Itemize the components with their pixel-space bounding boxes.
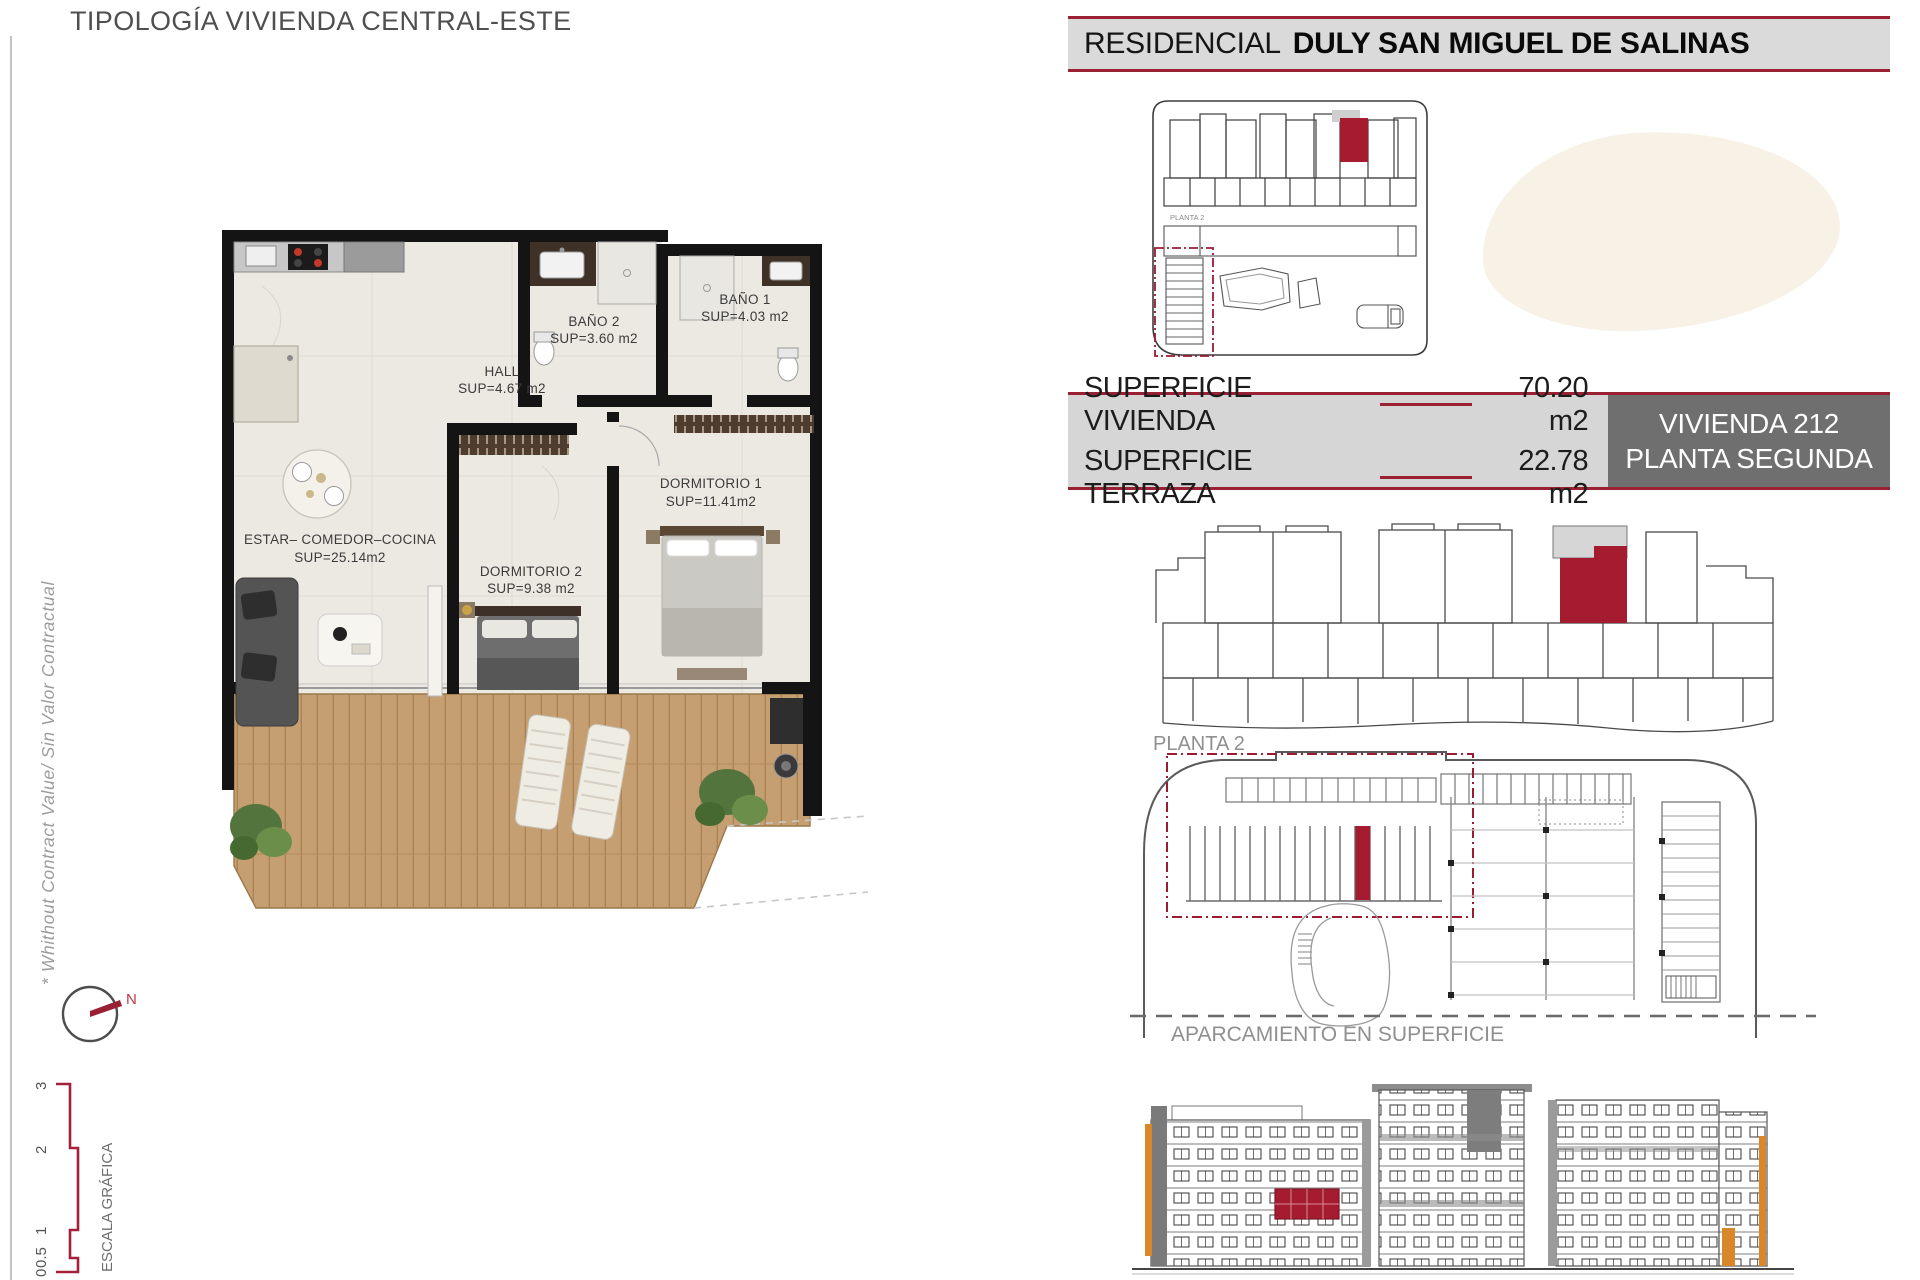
compass-north-label: N [126,991,137,1008]
elevation-highlight-unit [1275,1189,1339,1219]
room-sup: SUP=4.67 m2 [458,381,546,396]
parking-structure-grid [1448,797,1720,1002]
surface-row: SUPERFICIE TERRAZA 22.78 m2 [1084,445,1592,511]
plan-sheet: TIPOLOGÍA VIVIENDA CENTRAL-ESTE [0,0,1920,1280]
divider-dash [1380,403,1472,406]
decor-blob [1479,126,1844,336]
unit-number: VIVIENDA 212 [1659,408,1839,440]
scale-tick: 3 [33,1082,50,1090]
surface-values: SUPERFICIE VIVIENDA 70.20 m2 SUPERFICIE … [1068,392,1608,490]
room-sup: SUP=4.03 m2 [701,309,789,324]
surface-table: SUPERFICIE VIVIENDA 70.20 m2 SUPERFICIE … [1068,392,1890,490]
floor-key-plan: PLANTA 2 [1148,518,1803,758]
siteplan-label: PLANTA 2 [1170,213,1204,222]
scale-tick: 0.5 [33,1247,50,1268]
surface-value: 70.20 m2 [1488,372,1592,438]
room-label: DORMITORIO 1 [660,476,762,491]
room-label: BAÑO 1 [719,292,770,307]
apartment-floorplan: HALL SUP=4.67 m2 BAÑO 2 SUP=3.60 m2 BAÑO… [222,226,870,952]
scale-tick: 2 [33,1146,50,1154]
surface-value: 22.78 m2 [1488,445,1592,511]
header-project-name: DULY SAN MIGUEL DE SALINAS [1293,27,1750,61]
surface-label: SUPERFICIE VIVIENDA [1084,372,1380,438]
room-label: ESTAR– COMEDOR–COCINA [244,532,436,547]
surface-row: SUPERFICIE VIVIENDA 70.20 m2 [1084,372,1592,438]
parking-plan: APARCAMIENTO EN SUPERFICIE [1126,738,1820,1048]
project-header: RESIDENCIAL DULY SAN MIGUEL DE SALINAS [1068,16,1890,72]
room-label: BAÑO 2 [568,314,619,329]
building-elevation [1122,1076,1802,1280]
site-plan: PLANTA 2 [1150,98,1460,363]
scale-tick: 1 [33,1227,50,1235]
parking-highlight-spot [1356,826,1371,900]
divider-dash [1380,476,1472,479]
scale-title: ESCALA GRÁFICA [99,1143,116,1272]
room-sup: SUP=25.14m2 [294,550,385,565]
surface-label: SUPERFICIE TERRAZA [1084,445,1380,511]
room-sup: SUP=3.60 m2 [550,331,638,346]
scale-tick: 0 [33,1269,50,1277]
room-label: DORMITORIO 2 [480,564,582,579]
keyplan-outline [1156,524,1773,732]
siteplan-highlight-unit [1340,118,1368,162]
page-title: TIPOLOGÍA VIVIENDA CENTRAL-ESTE [70,6,572,37]
disclaimer-note: * Whithout Contract Value/ Sin Valor Con… [38,515,59,985]
unit-floor: PLANTA SEGUNDA [1625,443,1872,475]
room-sup: SUP=9.38 m2 [487,581,575,596]
parking-rows [1186,774,1631,901]
room-sup: SUP=11.41m2 [666,494,756,509]
parking-label: APARCAMIENTO EN SUPERFICIE [1171,1023,1504,1046]
parking-sculpture [1291,904,1389,1026]
compass-icon: N [56,978,156,1050]
elevation-blocks [1151,1084,1767,1266]
graphic-scale: 0 0.5 1 2 3 ESCALA GRÁFICA [12,1072,142,1280]
room-label: HALL [485,364,520,379]
header-prefix: RESIDENCIAL [1084,27,1281,61]
unit-badge: VIVIENDA 212 PLANTA SEGUNDA [1608,392,1890,490]
